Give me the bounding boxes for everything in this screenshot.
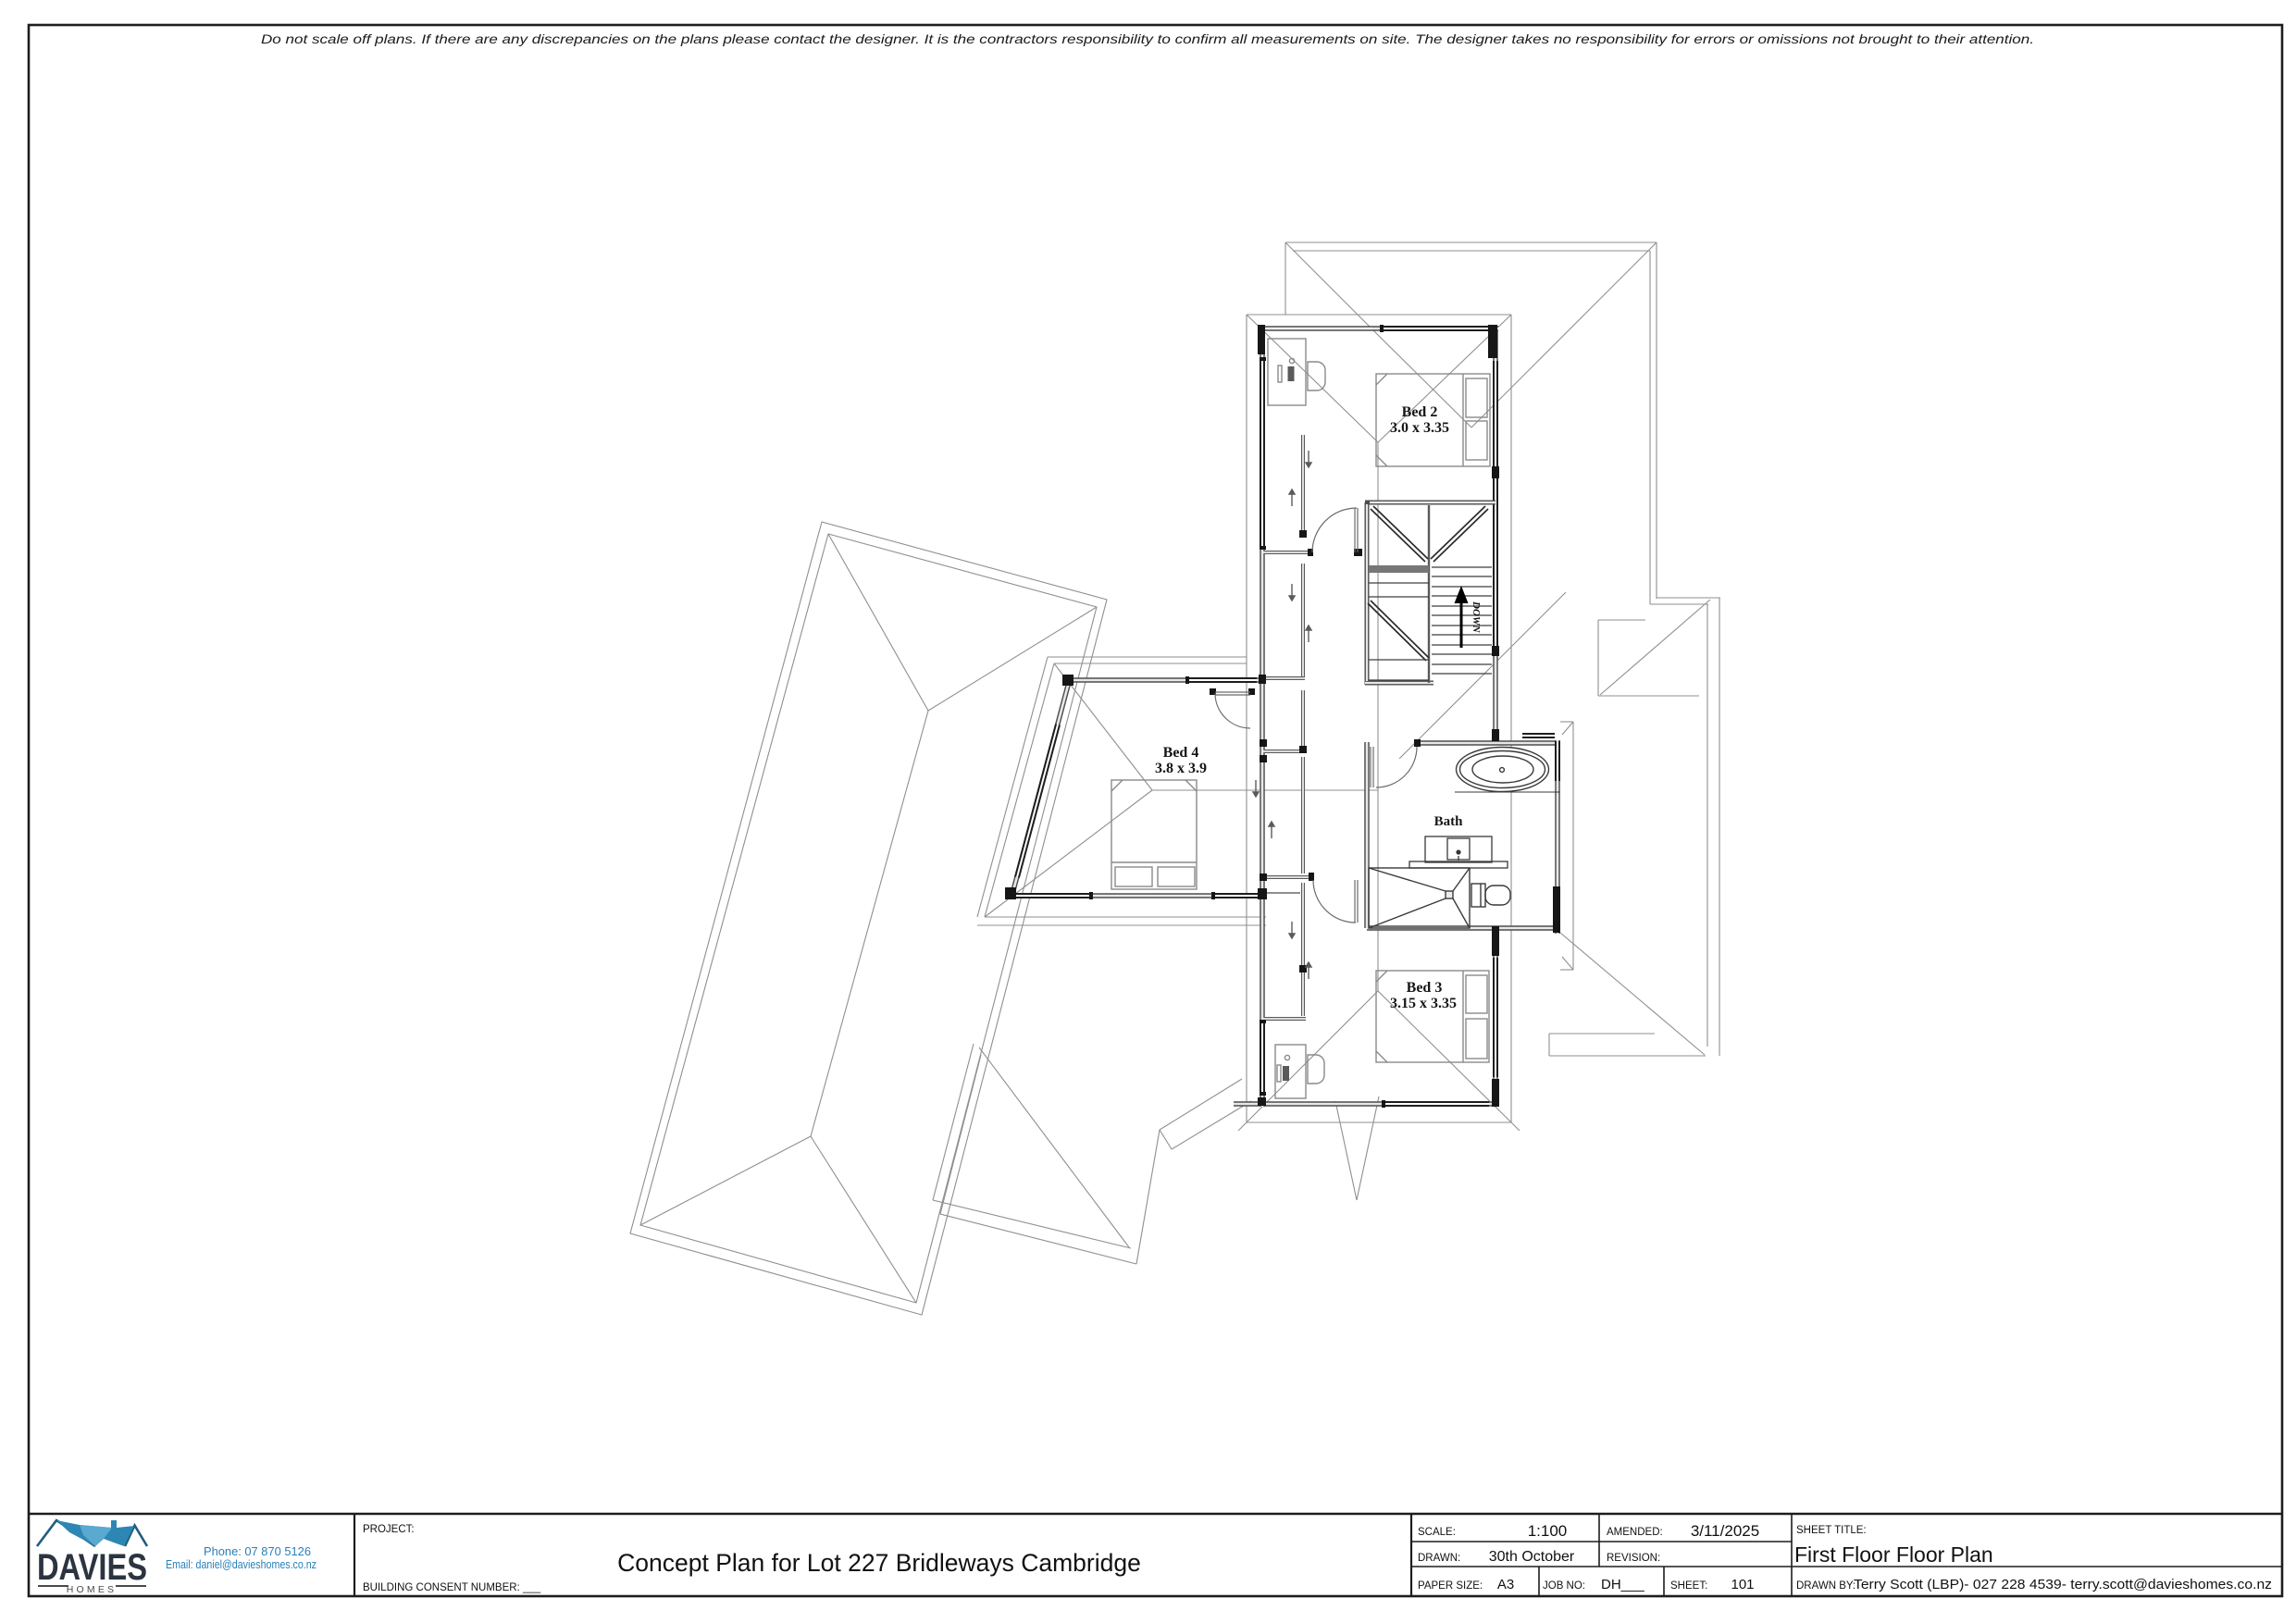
svg-text:101: 101 [1731, 1577, 1754, 1592]
svg-text:DOWN: DOWN [1471, 601, 1482, 634]
svg-text:DRAWN BY:: DRAWN BY: [1796, 1580, 1855, 1592]
svg-text:3/11/2025: 3/11/2025 [1691, 1522, 1759, 1540]
svg-text:DH___: DH___ [1601, 1577, 1644, 1592]
svg-text:DAVIES: DAVIES [37, 1547, 147, 1588]
svg-text:First Floor Floor Plan: First Floor Floor Plan [1794, 1542, 1993, 1567]
svg-text:Concept Plan for Lot 227 Bridl: Concept Plan for Lot 227 Bridleways Camb… [617, 1549, 1141, 1577]
svg-text:Terry Scott (LBP)- 027 228 453: Terry Scott (LBP)- 027 228 4539- terry.s… [1854, 1578, 2272, 1592]
svg-text:SCALE:: SCALE: [1418, 1527, 1456, 1538]
svg-text:SHEET TITLE:: SHEET TITLE: [1796, 1525, 1867, 1536]
svg-text:BUILDING CONSENT NUMBER: ___: BUILDING CONSENT NUMBER: ___ [363, 1582, 541, 1593]
svg-text:JOB NO:: JOB NO: [1543, 1580, 1585, 1592]
svg-text:PROJECT:: PROJECT: [363, 1524, 415, 1535]
svg-text:AMENDED:: AMENDED: [1607, 1527, 1663, 1538]
svg-text:3.15 x 3.35: 3.15 x 3.35 [1390, 996, 1457, 1011]
svg-text:Bed 3: Bed 3 [1407, 980, 1443, 996]
svg-text:3.0 x 3.35: 3.0 x 3.35 [1390, 420, 1449, 436]
svg-text:30th October: 30th October [1489, 1549, 1575, 1565]
svg-text:PAPER SIZE:: PAPER SIZE: [1418, 1580, 1483, 1592]
svg-text:Bed 4: Bed 4 [1163, 745, 1199, 761]
svg-text:1:100: 1:100 [1528, 1522, 1568, 1540]
svg-text:SHEET:: SHEET: [1670, 1580, 1707, 1592]
svg-text:HOMES: HOMES [67, 1584, 118, 1595]
svg-text:REVISION:: REVISION: [1607, 1553, 1660, 1564]
svg-text:Phone: 07 870 5126: Phone: 07 870 5126 [204, 1545, 311, 1558]
svg-text:Email: daniel@davieshomes.co.n: Email: daniel@davieshomes.co.nz [166, 1558, 316, 1571]
svg-text:DRAWN:: DRAWN: [1418, 1553, 1460, 1564]
svg-text:3.8 x 3.9: 3.8 x 3.9 [1155, 761, 1207, 776]
svg-text:Bed 2: Bed 2 [1402, 404, 1438, 420]
svg-text:Bath: Bath [1434, 814, 1464, 829]
svg-text:Do not scale off plans. If the: Do not scale off plans. If there are any… [261, 32, 2034, 47]
svg-text:A3: A3 [1497, 1577, 1514, 1592]
